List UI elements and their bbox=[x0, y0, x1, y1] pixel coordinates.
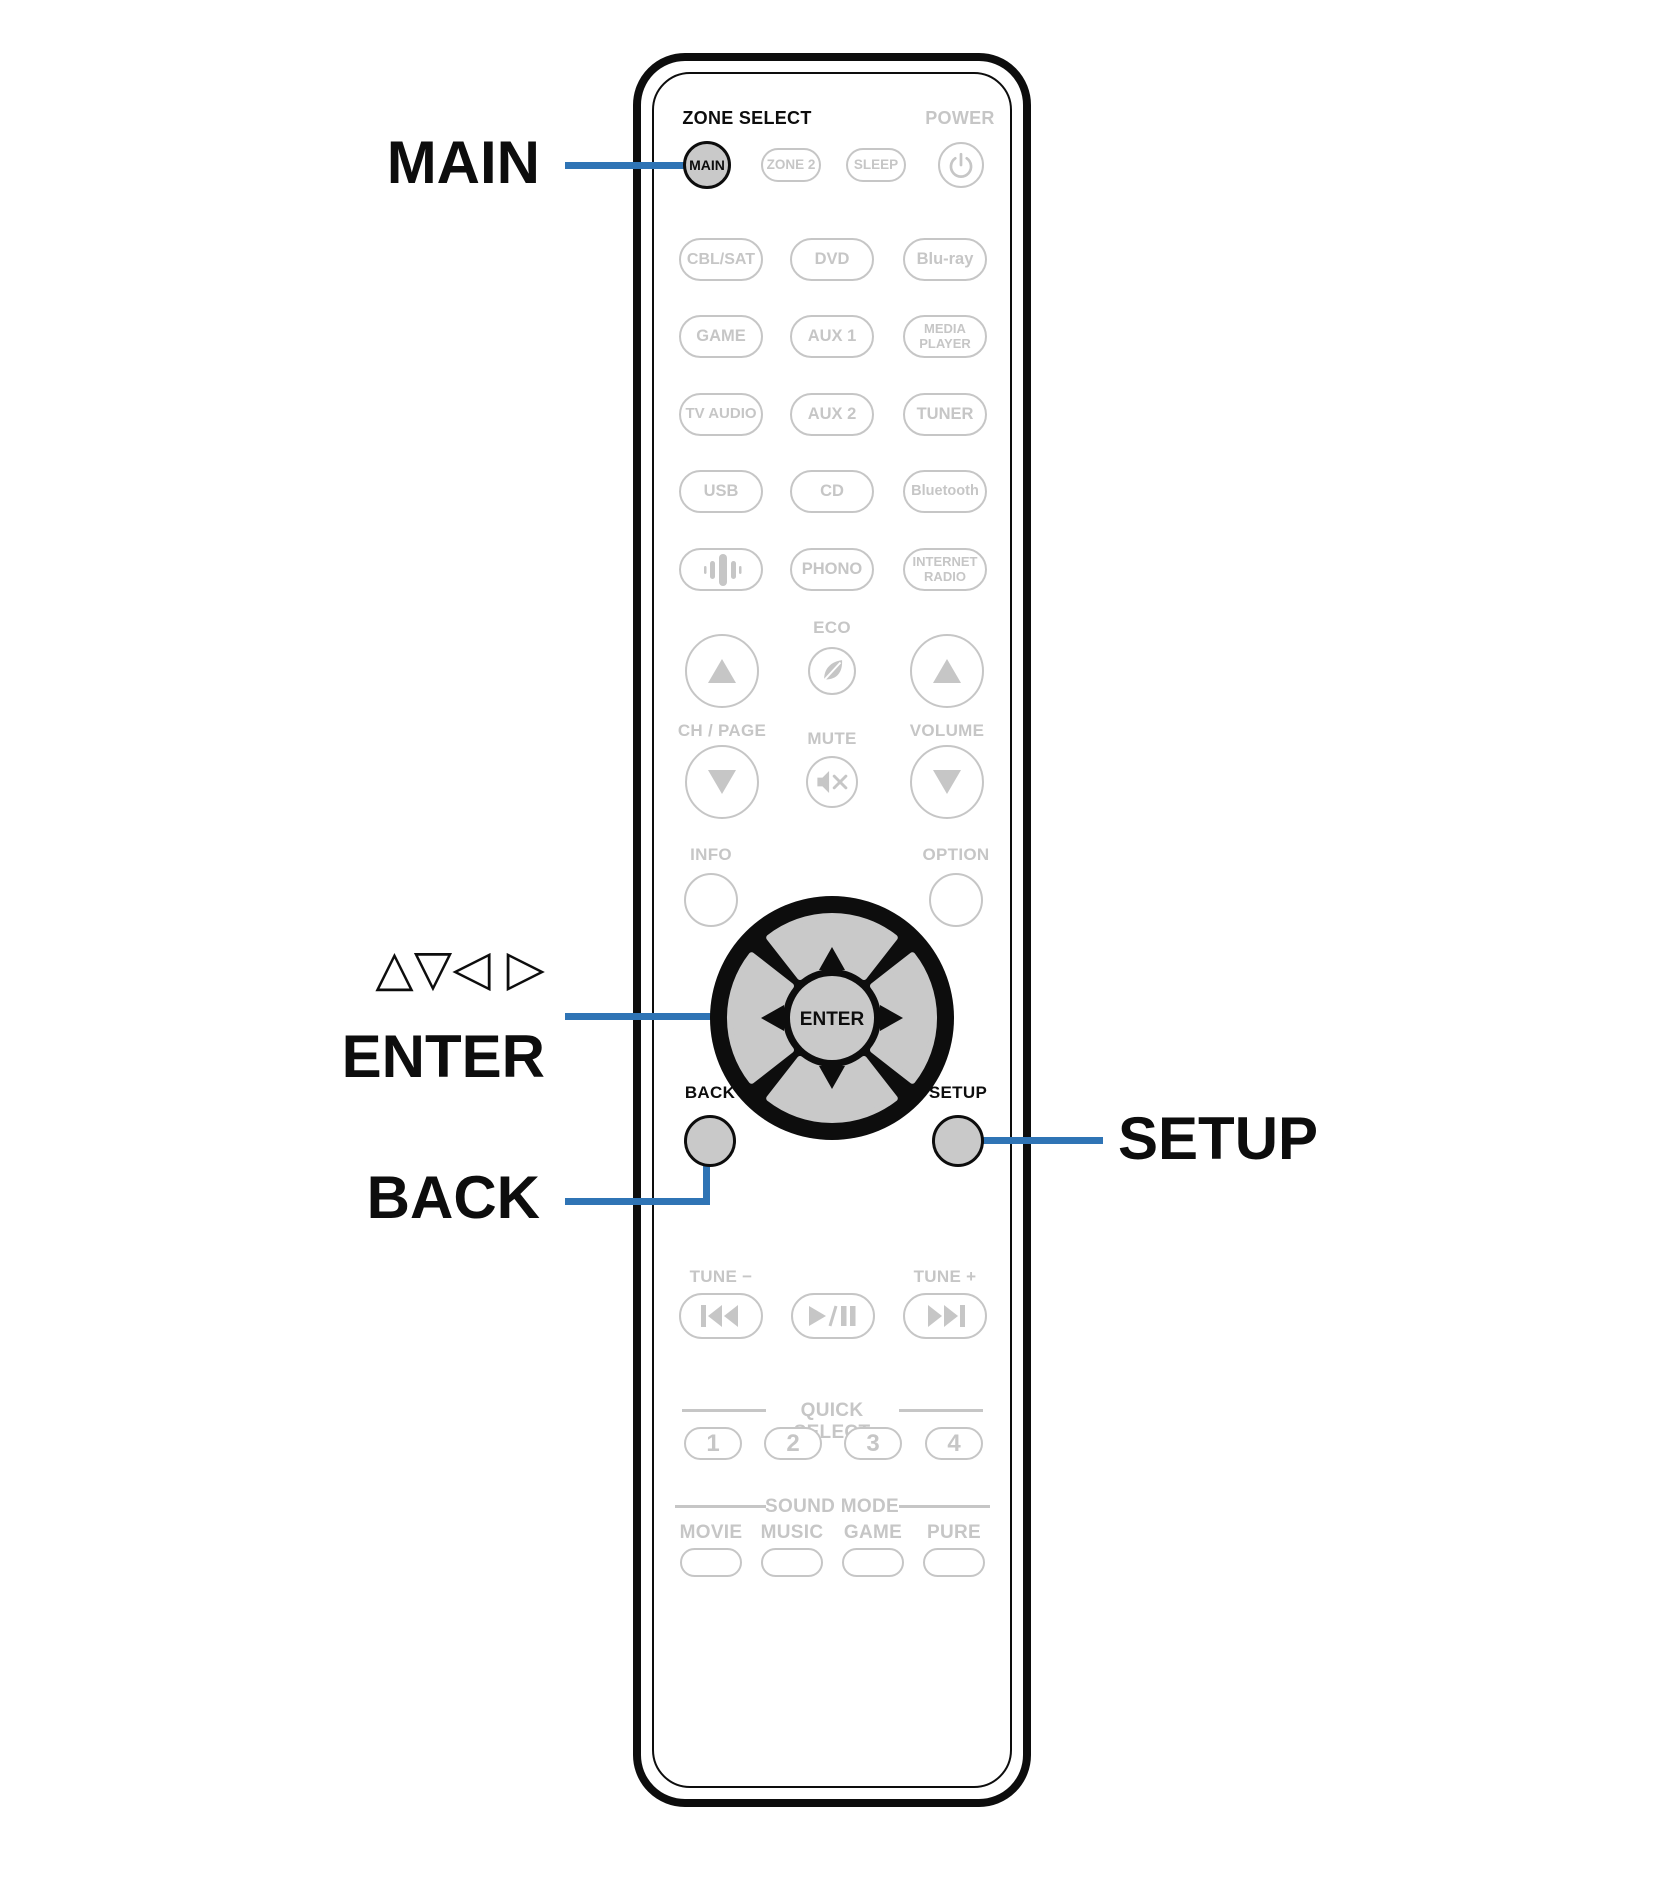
setup-button[interactable] bbox=[932, 1115, 984, 1167]
skip-forward-icon bbox=[925, 1305, 965, 1327]
skip-back-icon bbox=[701, 1305, 741, 1327]
main-zone-button[interactable]: MAIN bbox=[683, 141, 731, 189]
sleep-button[interactable]: SLEEP bbox=[846, 148, 906, 182]
sound-mode-right-rule bbox=[899, 1505, 990, 1508]
mute-icon bbox=[813, 767, 851, 797]
source-cblsat-button[interactable]: CBL/SAT bbox=[679, 238, 763, 281]
source-heos-button[interactable] bbox=[679, 548, 763, 591]
callout-setup-label: SETUP bbox=[1118, 1109, 1358, 1169]
tune-plus-label: TUNE + bbox=[895, 1267, 995, 1287]
enter-button[interactable]: ENTER bbox=[790, 976, 874, 1060]
skip-back-button[interactable] bbox=[679, 1293, 763, 1339]
sound-mode-movie-button[interactable] bbox=[680, 1548, 742, 1577]
main-zone-button-label: MAIN bbox=[689, 157, 725, 173]
eco-leaf-icon bbox=[815, 654, 849, 688]
source-dvd-button[interactable]: DVD bbox=[790, 238, 874, 281]
channel-up-button[interactable] bbox=[685, 634, 759, 708]
info-label: INFO bbox=[661, 845, 761, 865]
callout-line-setup bbox=[980, 1137, 1103, 1144]
triangle-down-icon bbox=[708, 770, 736, 794]
zone2-button[interactable]: ZONE 2 bbox=[761, 148, 821, 182]
source-tv-audio-button[interactable]: TV AUDIO bbox=[679, 393, 763, 436]
source-bluray-button[interactable]: Blu-ray bbox=[903, 238, 987, 281]
source-aux2-button[interactable]: AUX 2 bbox=[790, 393, 874, 436]
sound-mode-pure-label: PURE bbox=[904, 1522, 1004, 1544]
source-game-button[interactable]: GAME bbox=[679, 315, 763, 358]
source-cd-button[interactable]: CD bbox=[790, 470, 874, 513]
enter-button-label: ENTER bbox=[800, 1009, 865, 1030]
triangle-up-icon bbox=[708, 659, 736, 683]
volume-label: VOLUME bbox=[887, 721, 1007, 741]
quick-select-2-button[interactable]: 2 bbox=[764, 1427, 822, 1460]
source-bluetooth-button[interactable]: Bluetooth bbox=[903, 470, 987, 513]
tune-minus-label: TUNE − bbox=[671, 1267, 771, 1287]
power-label: POWER bbox=[910, 108, 1010, 129]
quick-select-4-button[interactable]: 4 bbox=[925, 1427, 983, 1460]
callout-line-enter bbox=[565, 1013, 713, 1020]
callout-line-back-horizontal bbox=[565, 1198, 710, 1205]
mute-label: MUTE bbox=[792, 729, 872, 749]
volume-down-button[interactable] bbox=[910, 745, 984, 819]
sound-mode-left-rule bbox=[675, 1505, 766, 1508]
triangle-up-icon bbox=[933, 659, 961, 683]
callout-cursor-triangles: △▽◁ ▷ bbox=[295, 943, 545, 993]
cursor-pad: ENTER bbox=[707, 893, 957, 1143]
source-internet-radio-button[interactable]: INTERNET RADIO bbox=[903, 548, 987, 591]
source-usb-button[interactable]: USB bbox=[679, 470, 763, 513]
volume-up-button[interactable] bbox=[910, 634, 984, 708]
back-button[interactable] bbox=[684, 1115, 736, 1167]
play-pause-button[interactable] bbox=[791, 1293, 875, 1339]
heos-icon bbox=[699, 552, 743, 588]
sound-mode-game-button[interactable] bbox=[842, 1548, 904, 1577]
callout-line-main bbox=[565, 162, 687, 169]
page: ZONE SELECT POWER MAIN ZONE 2 SLEEP CBL/… bbox=[0, 0, 1665, 1878]
channel-down-button[interactable] bbox=[685, 745, 759, 819]
power-icon bbox=[944, 148, 978, 182]
quick-select-right-rule bbox=[899, 1409, 983, 1412]
skip-forward-button[interactable] bbox=[903, 1293, 987, 1339]
eco-label: ECO bbox=[792, 618, 872, 638]
source-aux1-button[interactable]: AUX 1 bbox=[790, 315, 874, 358]
option-label: OPTION bbox=[906, 845, 1006, 865]
power-button[interactable] bbox=[938, 142, 984, 188]
triangle-down-icon bbox=[933, 770, 961, 794]
source-media-player-button[interactable]: MEDIA PLAYER bbox=[903, 315, 987, 358]
ch-page-label: CH / PAGE bbox=[662, 721, 782, 741]
quick-select-3-button[interactable]: 3 bbox=[844, 1427, 902, 1460]
sound-mode-title: SOUND MODE bbox=[762, 1496, 902, 1518]
sound-mode-music-button[interactable] bbox=[761, 1548, 823, 1577]
quick-select-left-rule bbox=[682, 1409, 766, 1412]
callout-back-label: BACK bbox=[300, 1168, 540, 1228]
source-tuner-button[interactable]: TUNER bbox=[903, 393, 987, 436]
zone-select-label: ZONE SELECT bbox=[672, 108, 822, 129]
source-phono-button[interactable]: PHONO bbox=[790, 548, 874, 591]
mute-button[interactable] bbox=[806, 756, 858, 808]
play-pause-icon bbox=[809, 1305, 857, 1327]
callout-enter-label: ENTER bbox=[300, 1027, 545, 1087]
quick-select-1-button[interactable]: 1 bbox=[684, 1427, 742, 1460]
callout-main-label: MAIN bbox=[300, 133, 540, 193]
eco-button[interactable] bbox=[808, 647, 856, 695]
sound-mode-pure-button[interactable] bbox=[923, 1548, 985, 1577]
